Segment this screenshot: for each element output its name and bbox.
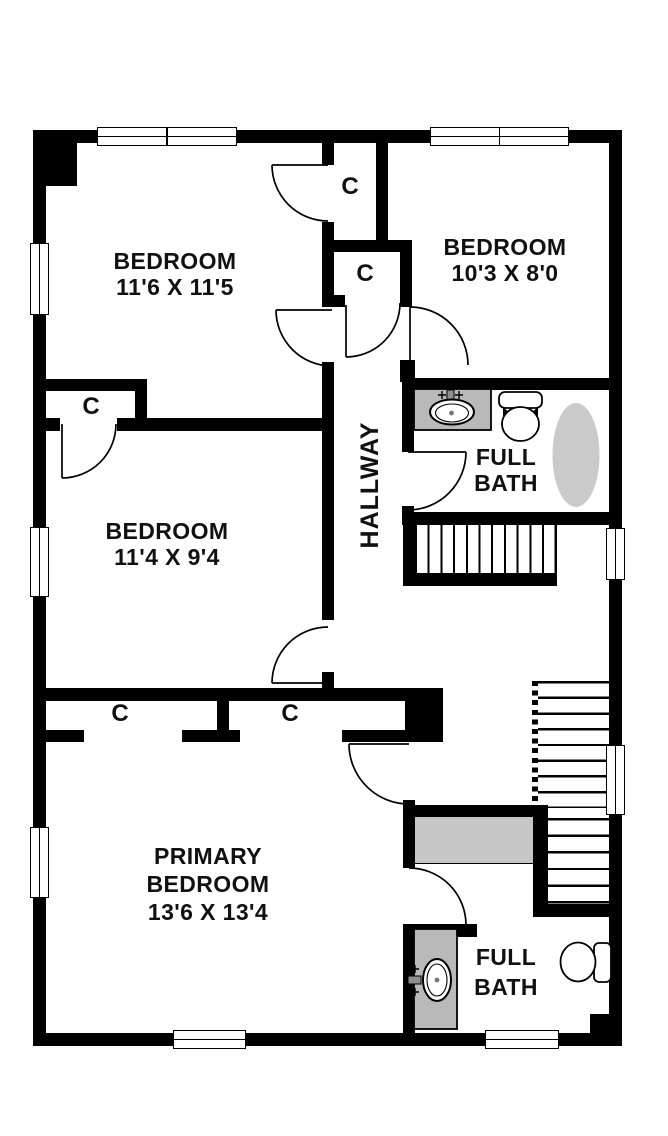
room-dimensions: 13'6 X 13'4 [148, 898, 268, 926]
window [30, 827, 49, 898]
room-label-bath-lower: FULL BATH [461, 941, 551, 1003]
window [173, 1030, 246, 1049]
room-name: BATH [474, 972, 538, 1002]
room-name: HALLWAY [357, 422, 383, 549]
room-name: BATH [474, 470, 538, 496]
room-label-bedroom-top-left: BEDROOM 11'6 X 11'5 [75, 247, 275, 301]
room-dimensions: 10'3 X 8'0 [451, 260, 558, 286]
sink-drain-icon [449, 411, 454, 416]
room-name: BEDROOM [444, 234, 567, 260]
sink-drain-icon [435, 978, 440, 983]
door-arc [349, 744, 409, 804]
door-arc [410, 307, 468, 365]
window [30, 527, 49, 597]
closet-label: C [276, 701, 304, 727]
toilet-bowl-icon [561, 943, 596, 982]
room-label-bath-upper: FULL BATH [461, 443, 551, 497]
closet-label: C [336, 174, 364, 200]
room-name: BEDROOM [106, 518, 229, 544]
bathtub-icon [553, 403, 600, 507]
faucet-icon [408, 976, 421, 984]
room-label-bedroom-top-right: BEDROOM 10'3 X 8'0 [405, 233, 605, 287]
door-arc [272, 165, 328, 221]
window [606, 528, 625, 580]
room-dimensions: 11'4 X 9'4 [114, 544, 220, 570]
door-arc [346, 303, 400, 357]
room-dimensions: 11'6 X 11'5 [116, 274, 234, 300]
room-label-primary-bedroom: PRIMARY BEDROOM 13'6 X 13'4 [108, 841, 308, 927]
window [485, 1030, 559, 1049]
door-arc [62, 424, 116, 478]
floor-plan: BEDROOM 11'6 X 11'5 BEDROOM 10'3 X 8'0 B… [0, 0, 668, 1136]
closet-label: C [351, 261, 379, 287]
room-label-bedroom-mid-left: BEDROOM 11'4 X 9'4 [67, 517, 267, 571]
window [606, 745, 625, 815]
room-name: BEDROOM [114, 248, 237, 274]
toilet-tank-icon [499, 392, 542, 408]
room-name: FULL [476, 942, 536, 972]
closet-label: C [106, 701, 134, 727]
room-name: FULL [476, 444, 536, 470]
window [30, 243, 49, 315]
toilet-tank-icon [594, 943, 611, 982]
door-arc [409, 868, 466, 925]
door-arc [272, 627, 328, 683]
room-name: PRIMARY [154, 842, 262, 870]
window [430, 127, 569, 146]
room-name: BEDROOM [147, 870, 270, 898]
window [97, 127, 237, 146]
door-arc [408, 452, 466, 510]
closet-label: C [77, 394, 105, 420]
door-arc [276, 310, 332, 366]
toilet-bowl-icon [502, 407, 539, 441]
room-label-hallway: HALLWAY [355, 415, 385, 555]
